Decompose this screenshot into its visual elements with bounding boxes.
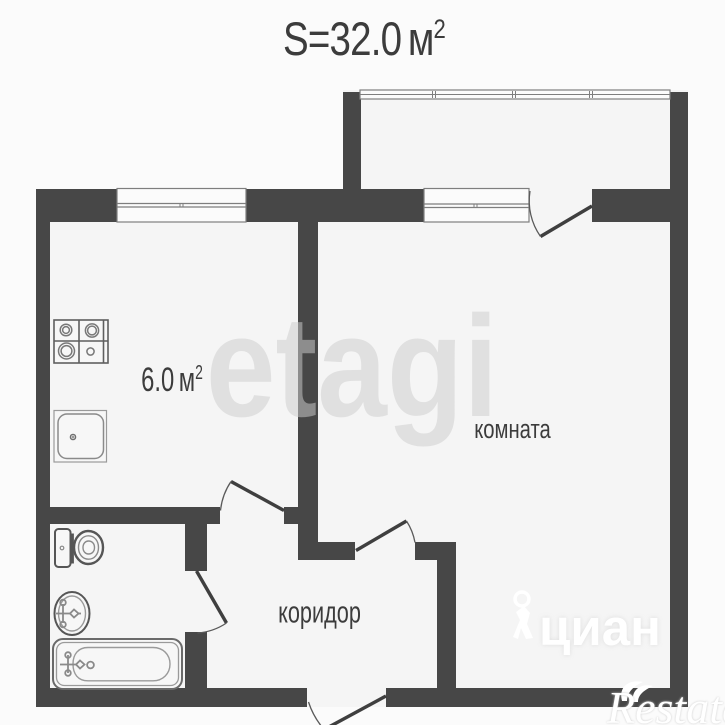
- svg-text:Restate: Restate: [606, 682, 725, 725]
- svg-text:циан: циан: [539, 599, 661, 656]
- svg-text:коридор: коридор: [278, 595, 361, 630]
- svg-text:S=32.0 м2: S=32.0 м2: [283, 13, 445, 65]
- svg-text:etagi: etagi: [206, 286, 498, 447]
- svg-text:6.0 м2: 6.0 м2: [141, 360, 203, 399]
